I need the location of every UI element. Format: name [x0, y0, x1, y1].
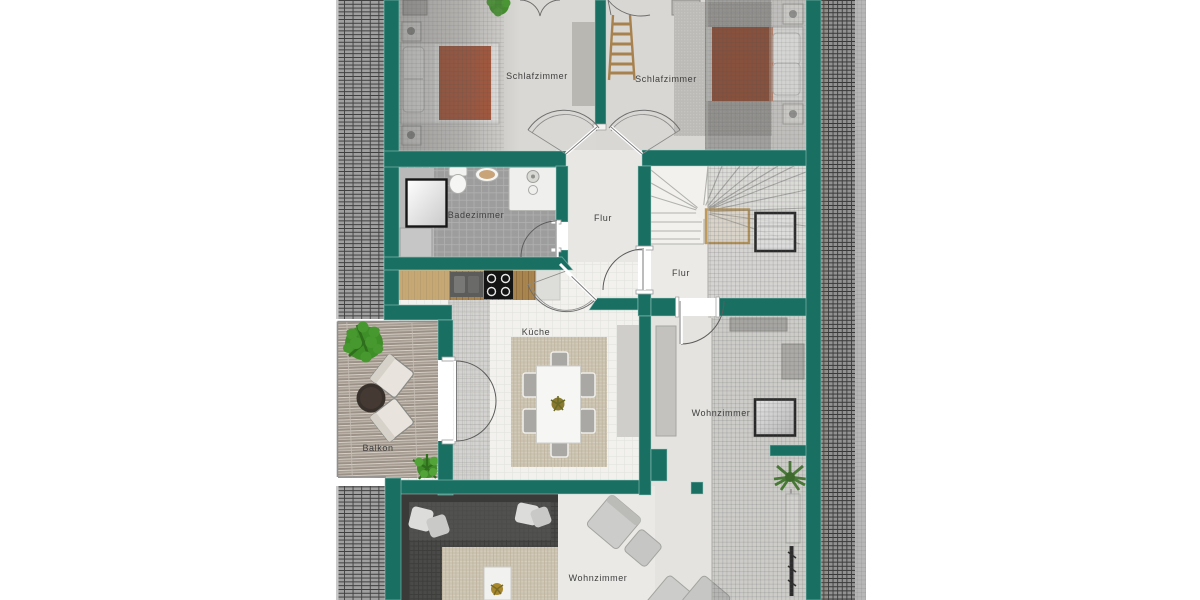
- svg-text:Badezimmer: Badezimmer: [448, 210, 505, 220]
- svg-text:Flur: Flur: [672, 268, 690, 278]
- svg-text:Schlafzimmer: Schlafzimmer: [635, 74, 697, 84]
- svg-text:Flur: Flur: [594, 213, 612, 223]
- svg-text:Balkon: Balkon: [362, 443, 393, 453]
- svg-text:Schlafzimmer: Schlafzimmer: [506, 71, 568, 81]
- svg-text:Wohnzimmer: Wohnzimmer: [569, 573, 628, 583]
- svg-text:Wohnzimmer: Wohnzimmer: [692, 408, 751, 418]
- svg-text:Küche: Küche: [522, 327, 551, 337]
